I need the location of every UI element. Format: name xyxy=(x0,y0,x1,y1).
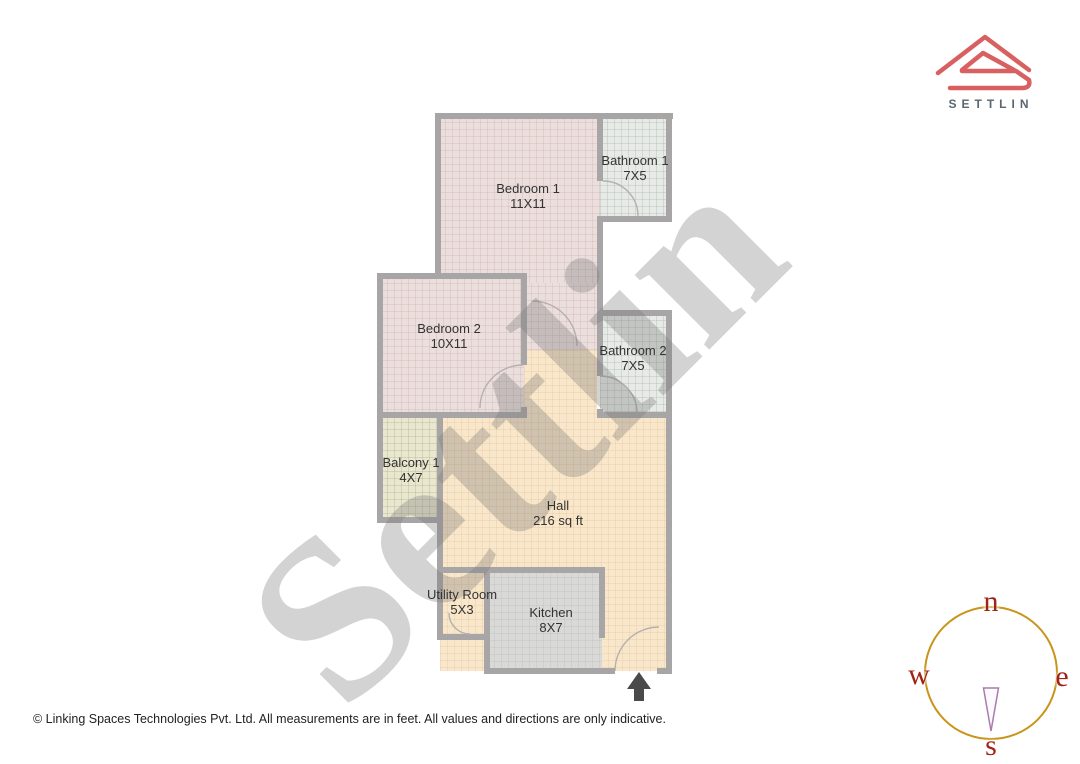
compass-west-label: w xyxy=(908,660,930,690)
compass-south-label: s xyxy=(985,731,997,761)
compass-needle-icon xyxy=(0,0,1080,764)
floorplan-page: Settlin Bedroom 1 11X11 Bathroom 1 7X5 B… xyxy=(0,0,1080,764)
compass-north-label: n xyxy=(984,587,999,617)
compass-east-label: e xyxy=(1055,662,1068,692)
